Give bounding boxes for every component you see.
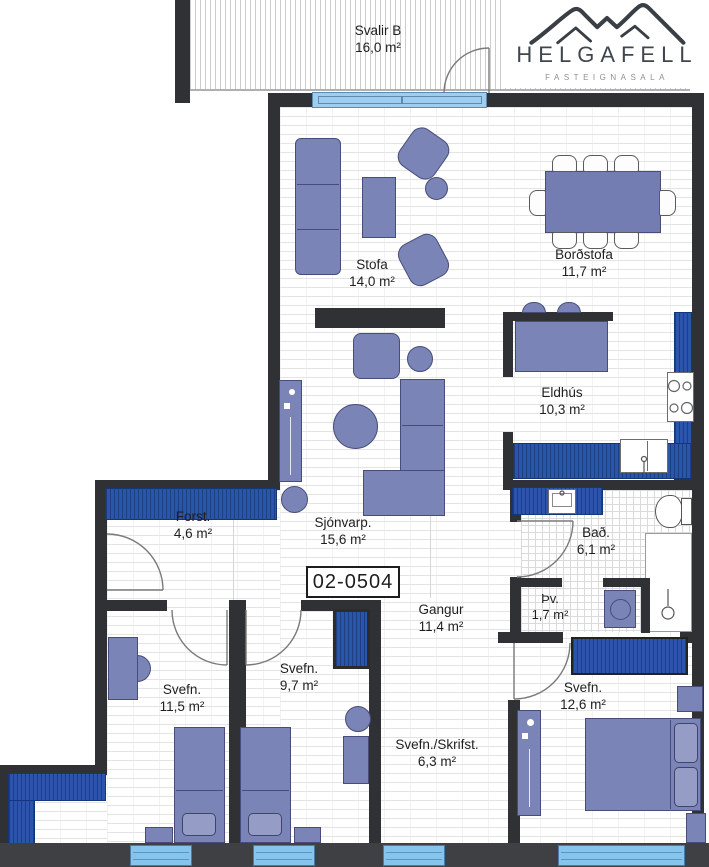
apartment-id-box: 02-0504 — [306, 566, 400, 598]
window — [558, 845, 685, 866]
room-label-bad: Bað. 6,1 m² — [577, 524, 615, 558]
balcony-window — [312, 92, 487, 108]
side-table — [425, 177, 448, 200]
dining-chair — [614, 155, 639, 172]
wall — [503, 432, 513, 480]
corner-sofa-chaise — [363, 470, 445, 516]
room-name: Gangur — [418, 602, 463, 617]
room-name: Svalir B — [355, 23, 402, 38]
window-pane — [402, 96, 482, 104]
sink-basin — [552, 493, 572, 507]
nightstand — [294, 827, 321, 843]
room-name: Borðstofa — [555, 247, 613, 262]
floor-plan: Svalir B 16,0 m² Stofa 14,0 m² Borðstofa… — [0, 0, 709, 867]
window-line — [561, 859, 682, 860]
room-name: Forst. — [176, 509, 211, 524]
desk — [108, 637, 138, 700]
pillow — [674, 767, 698, 807]
window — [130, 845, 192, 866]
tv-cabinet-detail — [284, 403, 290, 409]
wall — [498, 632, 563, 643]
room-name: Þv. — [541, 591, 559, 606]
tv-cabinet — [279, 380, 302, 482]
dining-chair — [552, 155, 577, 172]
sofa-cushion-line — [297, 229, 339, 230]
wall — [503, 312, 513, 377]
wall — [510, 578, 562, 587]
wall — [487, 93, 702, 107]
wall — [603, 578, 650, 587]
sink-divider — [647, 441, 648, 471]
desk — [343, 736, 369, 784]
wall — [369, 600, 381, 845]
toilet — [655, 495, 683, 528]
blanket-line — [176, 790, 223, 791]
coffee-table — [362, 177, 396, 238]
lounge-chair — [353, 333, 400, 379]
room-label-svefn-2: Svefn. 9,7 m² — [280, 660, 318, 694]
room-label-bordstofa: Borðstofa 11,7 m² — [555, 246, 613, 280]
window-line — [561, 852, 682, 853]
round-table — [333, 404, 378, 449]
dining-chair — [659, 190, 676, 216]
room-label-svefn-skrifst: Svefn./Skrifst. 6,3 m² — [395, 736, 478, 770]
window-line — [256, 859, 312, 860]
room-area: 15,6 m² — [314, 531, 371, 548]
room-name: Svefn./Skrifst. — [395, 737, 478, 752]
room-area: 9,7 m² — [280, 677, 318, 694]
blanket-line — [242, 790, 289, 791]
bathroom-sink — [548, 489, 576, 514]
blanket-line — [670, 720, 671, 809]
room-area: 11,5 m² — [160, 698, 205, 715]
sofa-cushion-line — [402, 425, 443, 426]
double-bed — [585, 718, 701, 811]
cooktop — [667, 372, 694, 422]
window-line — [256, 852, 312, 853]
side-table — [407, 346, 433, 372]
toilet-tank — [681, 498, 692, 525]
room-label-forst: Forst. 4,6 m² — [174, 508, 212, 542]
room-name: Bað. — [582, 525, 610, 540]
shower-pan — [645, 533, 692, 632]
dresser-detail — [522, 733, 528, 739]
dresser-line — [529, 749, 530, 807]
sofa — [295, 138, 341, 275]
washer-drum — [610, 599, 631, 620]
wall — [641, 587, 650, 633]
room-label-svefn-3: Svefn. 12,6 m² — [560, 679, 606, 713]
room-name: Svefn. — [163, 682, 201, 697]
wall — [0, 765, 8, 847]
nightstand — [686, 813, 706, 843]
media-wall — [315, 308, 445, 328]
pillow — [182, 813, 216, 836]
tv-cabinet-line — [290, 417, 291, 475]
room-area: 6,1 m² — [577, 541, 615, 558]
pillow — [674, 723, 698, 763]
room-label-gangur: Gangur 11,4 m² — [418, 601, 463, 635]
kitchen-island — [515, 321, 608, 372]
wall — [175, 0, 190, 103]
dining-chair — [583, 155, 608, 172]
apartment-id: 02-0504 — [313, 571, 393, 594]
room-label-svalir: Svalir B 16,0 m² — [355, 22, 402, 56]
nightstand — [677, 686, 703, 712]
dresser-knob — [527, 719, 534, 726]
wall — [95, 600, 167, 611]
dresser — [517, 710, 541, 816]
dining-chair — [614, 232, 639, 249]
room-label-svefn-1: Svefn. 11,5 m² — [160, 681, 205, 715]
dining-table — [545, 171, 661, 233]
bed — [240, 727, 291, 843]
window-pane — [318, 96, 402, 104]
room-name: Svefn. — [280, 661, 318, 676]
desk-chair — [345, 706, 371, 732]
kitchen-sink — [620, 439, 668, 473]
logo-title: HELGAFELL — [505, 42, 709, 68]
room-area: 16,0 m² — [355, 39, 402, 56]
window — [253, 845, 315, 866]
room-label-stofa: Stofa 14,0 m² — [349, 256, 395, 290]
wall — [503, 312, 613, 321]
dining-chair — [529, 190, 546, 216]
room-label-eldhus: Eldhús 10,3 m² — [539, 384, 585, 418]
room-area: 11,7 m² — [555, 263, 613, 280]
wall — [95, 480, 107, 773]
room-label-thvottahus: Þv. 1,7 m² — [532, 591, 569, 623]
nightstand — [145, 827, 173, 843]
agency-logo: HELGAFELL FASTEIGNASALA — [505, 0, 709, 88]
logo-subtitle: FASTEIGNASALA — [505, 73, 709, 82]
tv-cabinet-knob — [289, 389, 295, 395]
wardrobe — [333, 609, 370, 669]
room-area: 11,4 m² — [418, 618, 463, 635]
mountain-logo-icon — [517, 0, 697, 46]
room-name: Stofa — [356, 257, 388, 272]
washing-machine — [604, 590, 636, 628]
room-label-sjonvarp: Sjónvarp. 15,6 m² — [314, 514, 371, 548]
pillow — [248, 813, 282, 836]
room-area: 4,6 m² — [174, 525, 212, 542]
room-name: Svefn. — [564, 680, 602, 695]
room-area: 1,7 m² — [532, 607, 569, 623]
room-name: Eldhús — [541, 385, 582, 400]
window-line — [386, 852, 442, 853]
room-area: 12,6 m² — [560, 696, 606, 713]
window-line — [133, 852, 189, 853]
wardrobe — [8, 773, 106, 801]
room-area: 10,3 m² — [539, 401, 585, 418]
wardrobe — [571, 637, 688, 675]
sofa-cushion-line — [297, 184, 339, 185]
window-line — [133, 859, 189, 860]
window — [383, 845, 445, 866]
window-line — [386, 859, 442, 860]
stool — [281, 486, 308, 513]
room-name: Sjónvarp. — [314, 515, 371, 530]
bed — [174, 727, 225, 843]
room-area: 6,3 m² — [395, 753, 478, 770]
room-area: 14,0 m² — [349, 273, 395, 290]
